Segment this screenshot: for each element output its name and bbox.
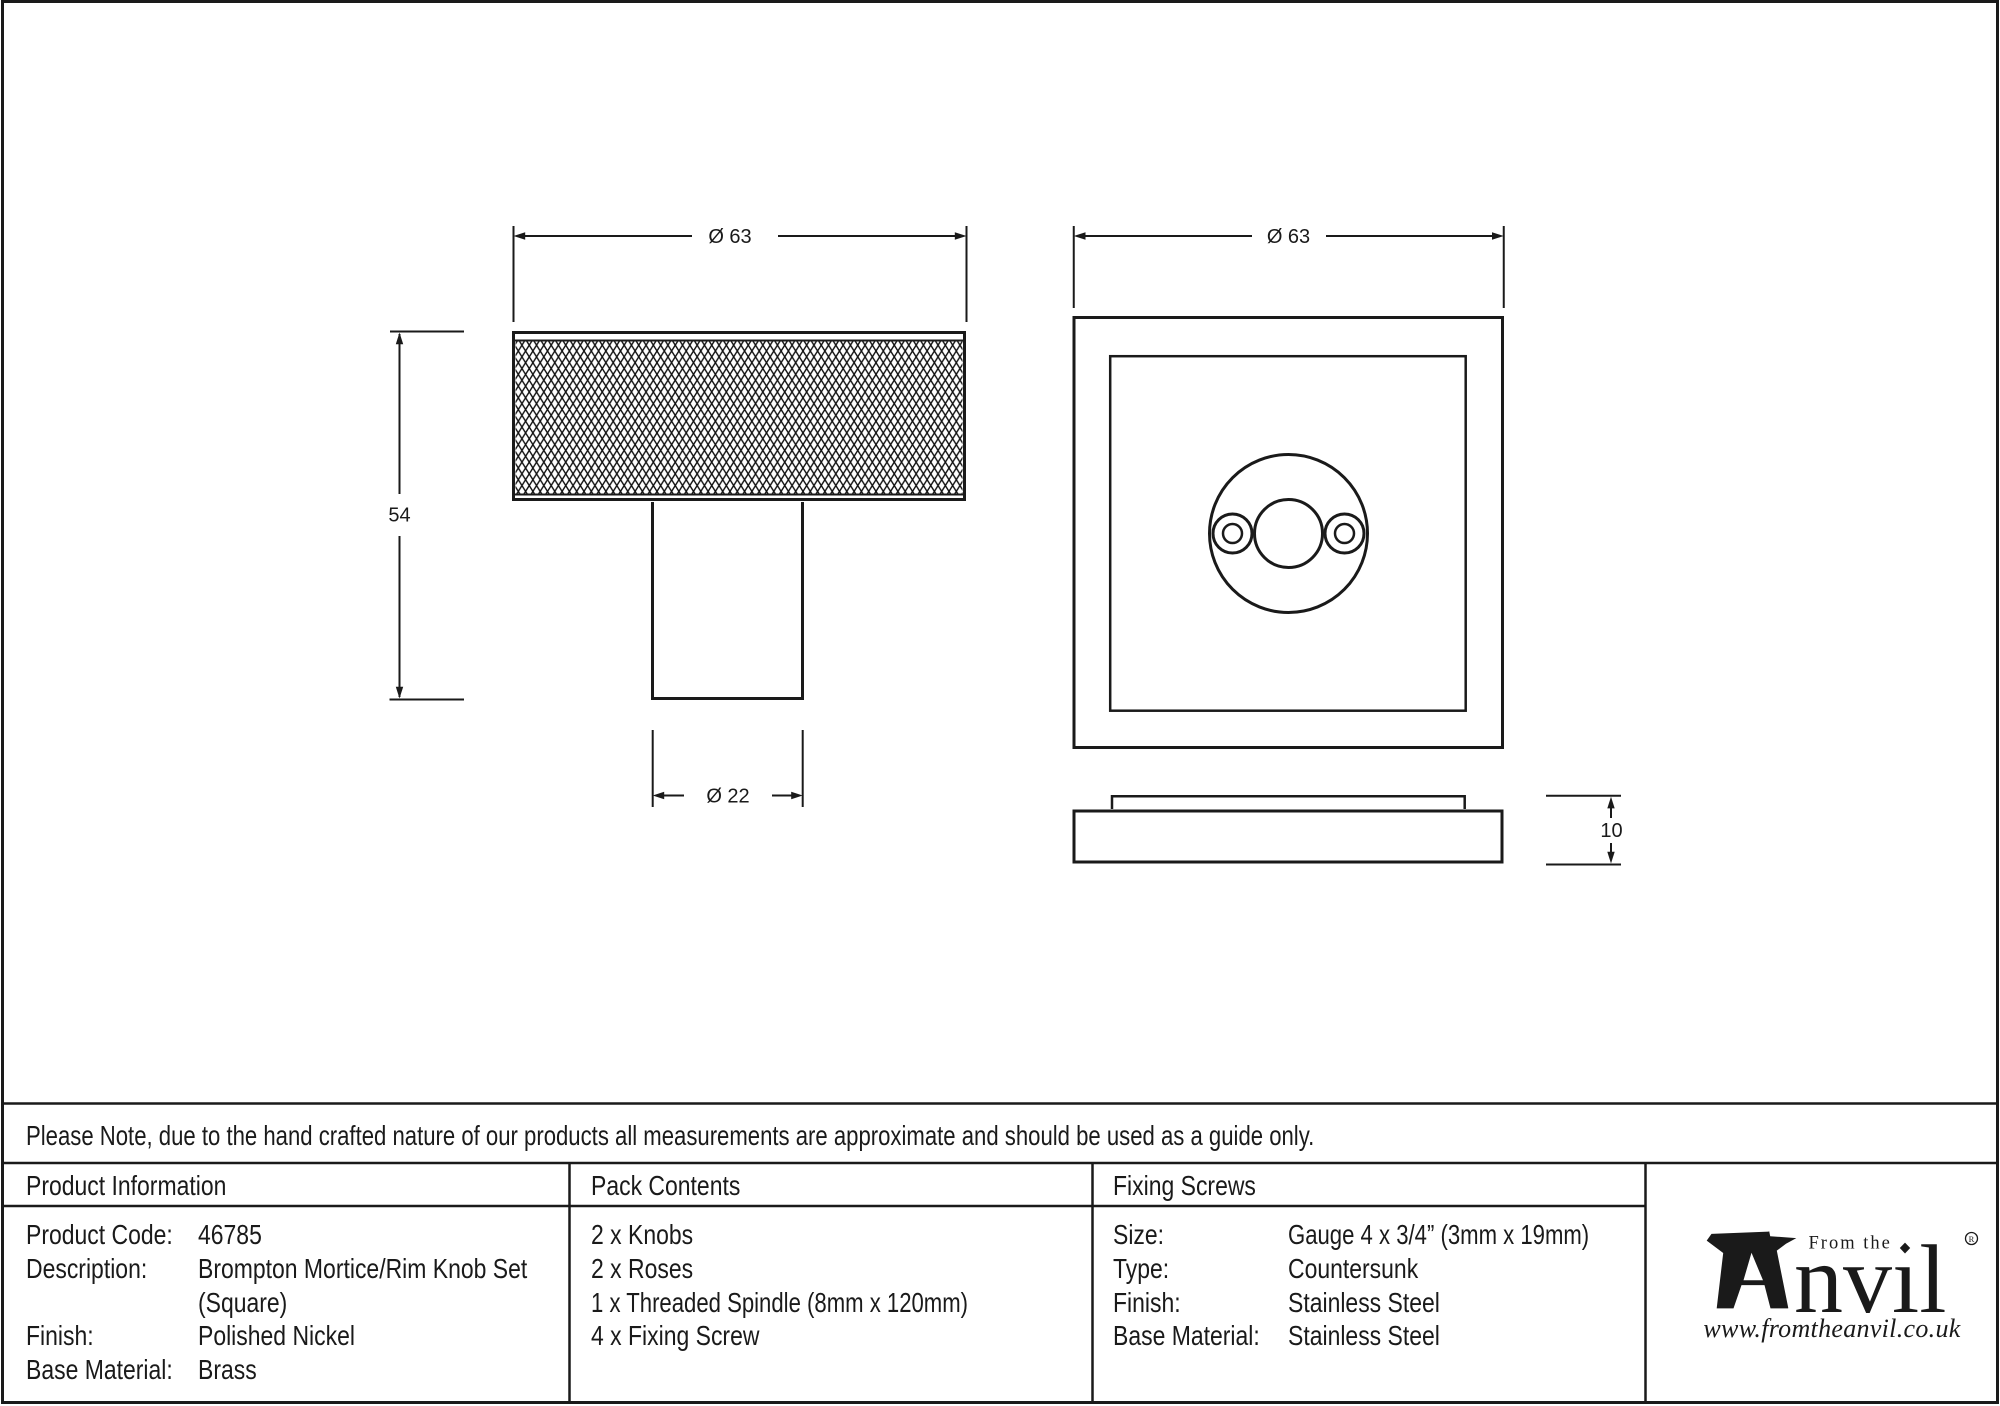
svg-text:54: 54 <box>388 505 410 527</box>
svg-text:www.fromtheanvil.co.uk: www.fromtheanvil.co.uk <box>1703 1314 1960 1343</box>
svg-text:R: R <box>1969 1234 1975 1244</box>
svg-text:Ø 22: Ø 22 <box>706 786 749 808</box>
svg-text:Ø 63: Ø 63 <box>1267 226 1310 248</box>
svg-text:Ø 63: Ø 63 <box>708 226 751 248</box>
svg-text:10: 10 <box>1600 820 1622 842</box>
